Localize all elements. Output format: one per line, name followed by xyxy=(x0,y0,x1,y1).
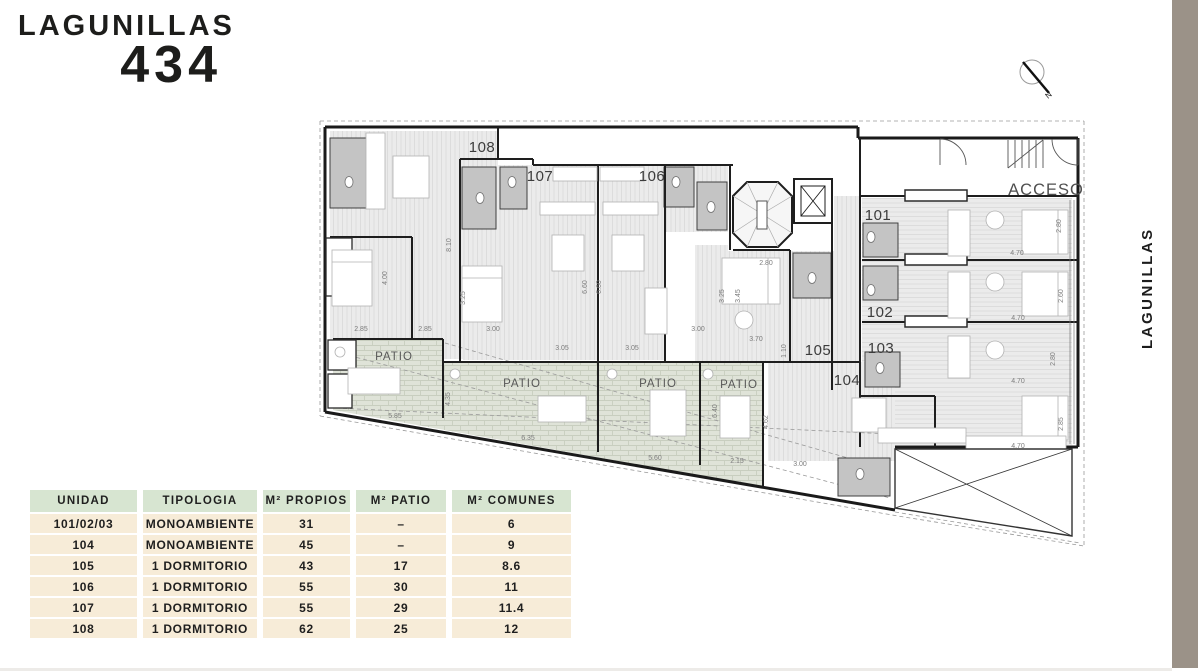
dimension-label: 4.70 xyxy=(1011,443,1025,450)
dimension-label: 3.25 xyxy=(719,289,726,303)
unit-label: 106 xyxy=(639,168,666,185)
dimension-label: 2.60 xyxy=(1058,289,1065,303)
floor-title-main: PLANTA 1 xyxy=(1156,567,1175,660)
unit-label: 102 xyxy=(867,304,894,321)
dimension-label: 4.70 xyxy=(1011,315,1025,322)
north-label: N xyxy=(1044,90,1054,101)
table-cell: 55 xyxy=(263,577,350,596)
table-cell: 104 xyxy=(30,535,137,554)
floor-title-tail: PISO xyxy=(1156,498,1175,551)
table-cell: 30 xyxy=(356,577,446,596)
table-cell: 108 xyxy=(30,619,137,638)
table-cell: 55 xyxy=(263,598,350,617)
dimension-label: 3.00 xyxy=(691,326,705,333)
patio-label: PATIO xyxy=(720,379,758,391)
table-cell: 1 DORMITORIO xyxy=(143,598,257,617)
dimension-label: 4.62 xyxy=(763,415,770,429)
dimension-label: 6.60 xyxy=(596,280,603,294)
dimension-label: 3.00 xyxy=(486,326,500,333)
brand-logo: LAGUNILLAS 434 xyxy=(18,12,224,87)
patio-label: PATIO xyxy=(639,378,677,390)
dimension-label: 1.10 xyxy=(781,344,788,358)
table-cell: 25 xyxy=(356,619,446,638)
sidebar-bar: PLANTA 1ER PISO xyxy=(1172,0,1198,668)
table-cell: 106 xyxy=(30,577,137,596)
unit-label: 105 xyxy=(805,342,832,359)
unit-label: 101 xyxy=(865,207,892,224)
table-cell: 9 xyxy=(452,535,571,554)
north-compass: N xyxy=(1020,60,1054,101)
table-cell: 43 xyxy=(263,556,350,575)
terrace-cross xyxy=(895,449,1072,536)
table-cell: MONOAMBIENTE xyxy=(143,535,257,554)
table-header-cell: TIPOLOGIA xyxy=(143,490,257,512)
table-cell: 1 DORMITORIO xyxy=(143,556,257,575)
table-header-cell: M² PATIO xyxy=(356,490,446,512)
table-cell: 29 xyxy=(356,598,446,617)
dimension-label: 3.25 xyxy=(460,291,467,305)
table-cell: 45 xyxy=(263,535,350,554)
table-cell: 105 xyxy=(30,556,137,575)
stair-core xyxy=(733,182,792,247)
table-cell: 8.6 xyxy=(452,556,571,575)
unit-label: 108 xyxy=(469,139,496,156)
brand-number: 434 xyxy=(18,44,224,87)
table-cell: 12 xyxy=(452,619,571,638)
table-cell: 107 xyxy=(30,598,137,617)
dimension-label: 4.70 xyxy=(1010,250,1024,257)
dimension-label: 6.35 xyxy=(521,435,535,442)
page: LAGUNILLAS 434 xyxy=(0,0,1200,671)
dimension-label: 3.45 xyxy=(735,289,742,303)
dimension-label: 2.80 xyxy=(759,260,773,267)
dimension-label: 2.85 xyxy=(354,326,368,333)
entrance-stair xyxy=(940,139,1078,168)
dimension-label: 5.60 xyxy=(648,455,662,462)
dimension-label: 8.10 xyxy=(446,238,453,252)
dimension-label: 3.70 xyxy=(749,336,763,343)
table-cell: 11 xyxy=(452,577,571,596)
patio-label: PATIO xyxy=(503,378,541,390)
unit-label: 104 xyxy=(834,372,861,389)
unit-label: 107 xyxy=(527,168,554,185)
table-cell: 17 xyxy=(356,556,446,575)
table-header-cell: M² COMUNES xyxy=(452,490,571,512)
acceso-label: ACCESO xyxy=(1008,181,1084,199)
table-cell: 31 xyxy=(263,514,350,533)
unit-label: 103 xyxy=(868,340,895,357)
floor-title-sup: ER xyxy=(1156,551,1166,567)
dimension-label: 6.40 xyxy=(712,404,719,418)
elevator xyxy=(794,179,832,223)
table-cell: 6 xyxy=(452,514,571,533)
dimension-label: 4.00 xyxy=(382,271,389,285)
table-cell: 62 xyxy=(263,619,350,638)
patio-label: PATIO xyxy=(375,351,413,363)
dimension-label: 6.60 xyxy=(582,280,589,294)
table-cell: 101/02/03 xyxy=(30,514,137,533)
table-cell: – xyxy=(356,514,446,533)
dimension-label: 2.85 xyxy=(1058,417,1065,431)
table-header-cell: M² PROPIOS xyxy=(263,490,350,512)
dimension-label: 4.70 xyxy=(1011,378,1025,385)
dimension-label: 2.85 xyxy=(418,326,432,333)
dimension-label: 3.05 xyxy=(625,345,639,352)
table-cell: – xyxy=(356,535,446,554)
table-cell: 1 DORMITORIO xyxy=(143,619,257,638)
dimension-label: 2.15 xyxy=(730,458,744,465)
table-cell: 11.4 xyxy=(452,598,571,617)
table-cell: 1 DORMITORIO xyxy=(143,577,257,596)
dimension-label: 4.35 xyxy=(445,392,452,406)
floor-title-vertical: PLANTA 1ER PISO xyxy=(1156,498,1176,660)
dimension-label: 2.80 xyxy=(1050,352,1057,366)
dimension-label: 3.05 xyxy=(555,345,569,352)
table-header-cell: UNIDAD xyxy=(30,490,137,512)
street-name-vertical: LAGUNILLAS xyxy=(1139,227,1156,349)
table-cell: MONOAMBIENTE xyxy=(143,514,257,533)
dimension-label: 2.80 xyxy=(1056,219,1063,233)
unit-table: UNIDADTIPOLOGIAM² PROPIOSM² PATIOM² COMU… xyxy=(30,490,571,638)
dimension-label: 5.85 xyxy=(388,413,402,420)
dimension-label: 3.00 xyxy=(793,461,807,468)
